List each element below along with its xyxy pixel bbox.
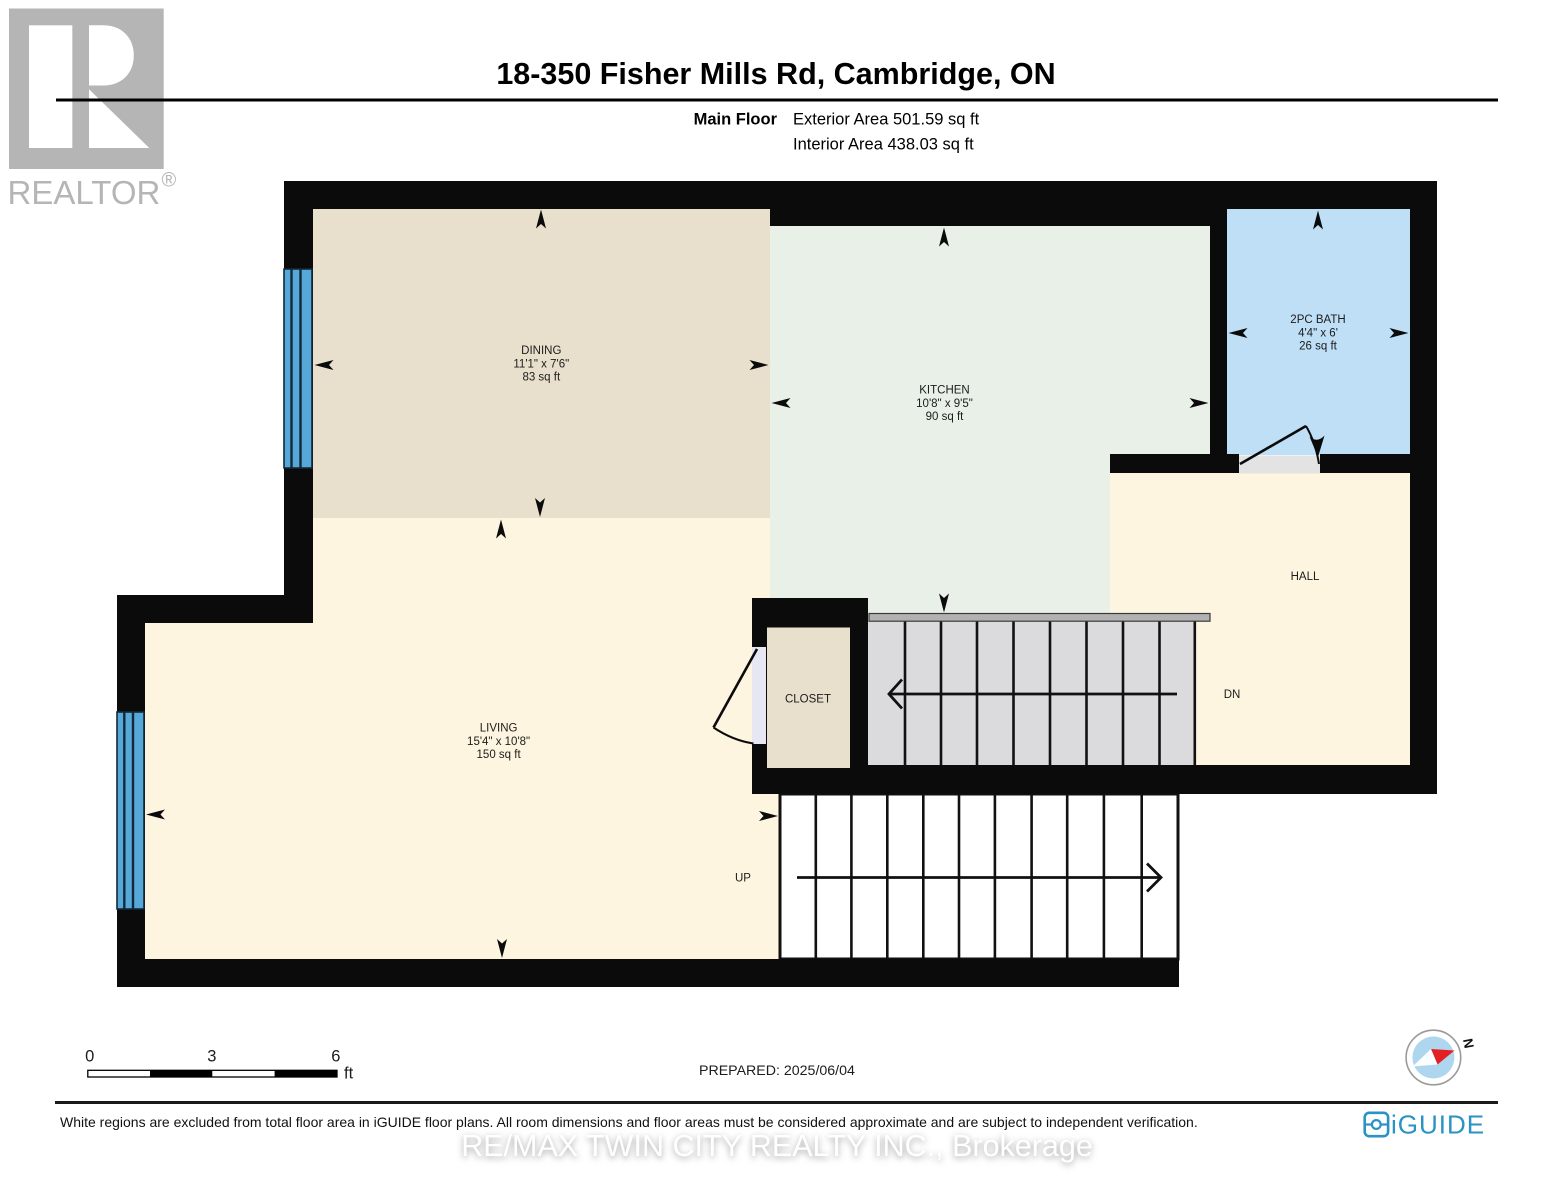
svg-text:®: ®: [162, 170, 177, 192]
svg-text:White regions are excluded fro: White regions are excluded from total fl…: [60, 1114, 1198, 1130]
svg-text:83 sq ft: 83 sq ft: [522, 372, 561, 384]
svg-text:0: 0: [85, 1048, 94, 1066]
svg-text:2PC BATH: 2PC BATH: [1290, 314, 1345, 326]
svg-text:N: N: [1460, 1037, 1477, 1049]
svg-text:ft: ft: [344, 1065, 354, 1083]
svg-text:150 sq ft: 150 sq ft: [477, 749, 522, 761]
svg-text:Main Floor: Main Floor: [694, 111, 778, 129]
svg-text:UP: UP: [735, 872, 751, 884]
svg-text:15'4" x 10'8": 15'4" x 10'8": [467, 736, 530, 748]
svg-text:DN: DN: [1224, 689, 1241, 701]
svg-text:RE/MAX TWIN CITY REALTY INC.,: RE/MAX TWIN CITY REALTY INC., Brokerage: [461, 1129, 1093, 1163]
svg-text:18-350 Fisher Mills Rd, Cambri: 18-350 Fisher Mills Rd, Cambridge, ON: [496, 57, 1055, 91]
svg-text:iGUIDE: iGUIDE: [1391, 1110, 1485, 1140]
svg-text:Exterior Area 501.59 sq ft: Exterior Area 501.59 sq ft: [793, 111, 980, 129]
svg-text:26 sq ft: 26 sq ft: [1299, 341, 1338, 353]
svg-text:3: 3: [207, 1048, 216, 1066]
svg-text:10'8" x 9'5": 10'8" x 9'5": [916, 398, 973, 410]
svg-text:90 sq ft: 90 sq ft: [926, 411, 965, 423]
svg-text:REALTOR: REALTOR: [8, 174, 161, 211]
svg-text:Interior Area 438.03 sq ft: Interior Area 438.03 sq ft: [793, 136, 974, 154]
svg-text:6: 6: [331, 1048, 340, 1066]
svg-text:DINING: DINING: [521, 345, 561, 357]
svg-text:HALL: HALL: [1291, 571, 1320, 583]
svg-text:KITCHEN: KITCHEN: [919, 385, 969, 397]
svg-text:LIVING: LIVING: [480, 723, 518, 735]
svg-text:CLOSET: CLOSET: [785, 694, 831, 706]
svg-text:11'1" x 7'6": 11'1" x 7'6": [513, 358, 569, 370]
svg-text:PREPARED: 2025/06/04: PREPARED: 2025/06/04: [699, 1063, 855, 1079]
svg-text:4'4" x 6': 4'4" x 6': [1298, 327, 1338, 339]
